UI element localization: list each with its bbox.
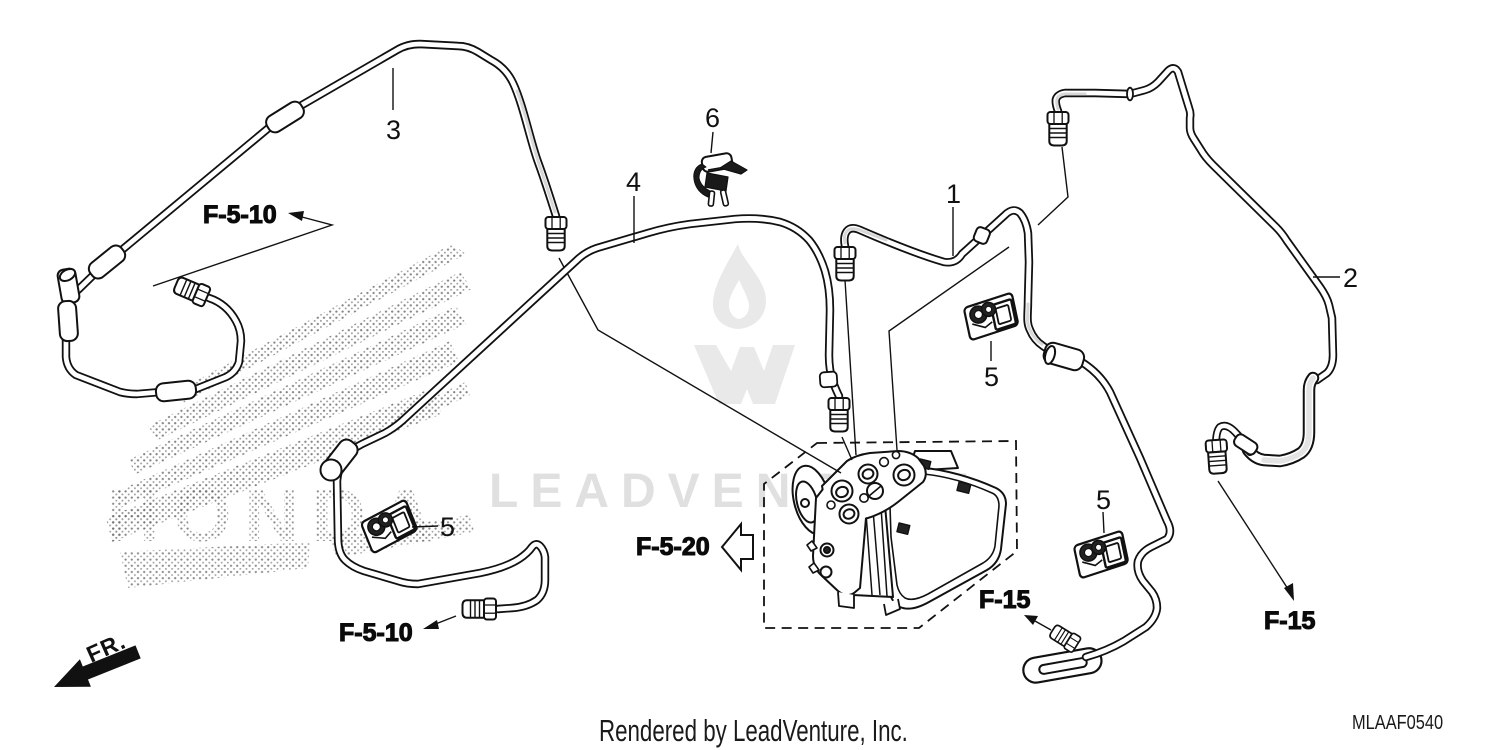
svg-text:F-5-10: F-5-10 [203,201,277,229]
svg-text:2: 2 [1343,263,1358,293]
svg-text:F-5-20: F-5-20 [636,533,710,561]
svg-text:MLAAF0540: MLAAF0540 [1352,710,1443,733]
svg-text:F-15: F-15 [979,586,1031,614]
svg-text:4: 4 [626,167,641,197]
svg-text:5: 5 [440,512,455,542]
svg-text:5: 5 [1096,485,1111,515]
svg-text:Rendered by LeadVenture, Inc.: Rendered by LeadVenture, Inc. [599,713,908,747]
svg-text:F-5-10: F-5-10 [339,619,413,647]
svg-text:5: 5 [984,362,999,392]
svg-text:1: 1 [946,179,961,209]
svg-text:3: 3 [386,115,401,145]
svg-text:6: 6 [705,103,720,133]
svg-text:F-15: F-15 [1264,607,1316,635]
